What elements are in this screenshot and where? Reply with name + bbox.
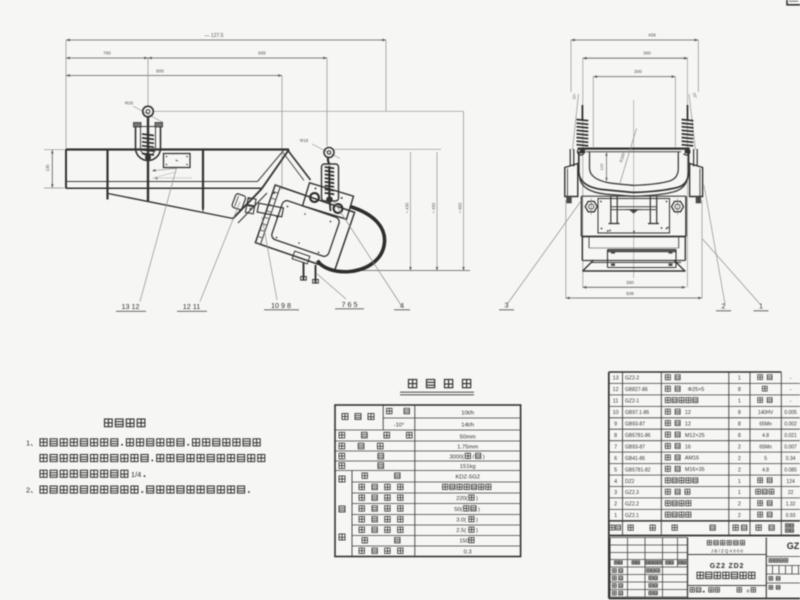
svg-text:120: 120 <box>599 163 604 170</box>
svg-text:0.34: 0.34 <box>786 456 796 462</box>
svg-text:760: 760 <box>103 51 111 56</box>
svg-text:458: 458 <box>648 33 656 38</box>
svg-text:124: 124 <box>786 479 795 485</box>
svg-text:GB93-87: GB93-87 <box>625 444 645 450</box>
svg-text:9: 9 <box>614 422 617 428</box>
svg-text:~ 430: ~ 430 <box>405 202 410 213</box>
svg-text:GB5781-82: GB5781-82 <box>625 467 651 473</box>
svg-text:1、: 1、 <box>26 439 38 448</box>
svg-text:140HV: 140HV <box>758 410 774 416</box>
svg-text:65Mn: 65Mn <box>759 422 772 428</box>
svg-text:10 9 8: 10 9 8 <box>271 301 291 310</box>
svg-text:14t/h: 14t/h <box>461 423 474 429</box>
svg-text:): ) <box>476 496 478 502</box>
svg-text:1: 1 <box>614 513 617 519</box>
svg-text:65Mn: 65Mn <box>759 444 772 450</box>
svg-text:0.93: 0.93 <box>786 513 796 519</box>
svg-text:Φ25×5: Φ25×5 <box>688 387 705 393</box>
svg-text:8: 8 <box>614 433 617 439</box>
svg-text:GZ: GZ <box>787 541 800 551</box>
svg-text:Φ26: Φ26 <box>125 101 134 106</box>
svg-text:4: 4 <box>614 479 617 485</box>
svg-text:4.8: 4.8 <box>762 433 769 439</box>
svg-text:508: 508 <box>626 291 634 296</box>
svg-text:8: 8 <box>738 410 741 416</box>
svg-text:7: 7 <box>614 444 617 450</box>
svg-text:M12×25: M12×25 <box>685 433 705 439</box>
svg-text:1.75mm: 1.75mm <box>457 445 478 451</box>
svg-text:2: 2 <box>738 444 741 450</box>
svg-text:1: 1 <box>738 479 741 485</box>
svg-text:3: 3 <box>505 301 509 310</box>
svg-text:GZ2.1: GZ2.1 <box>625 513 639 519</box>
svg-text:0.021: 0.021 <box>784 433 797 439</box>
svg-text:0.005: 0.005 <box>784 410 797 416</box>
svg-text:GB97.1-86: GB97.1-86 <box>625 410 649 416</box>
svg-text:J B / Z Q 4 0 0 0: J B / Z Q 4 0 0 0 <box>711 548 744 553</box>
svg-text:Φ18: Φ18 <box>300 138 309 143</box>
svg-text:GB93-87: GB93-87 <box>625 422 645 428</box>
svg-text:5: 5 <box>614 467 617 473</box>
svg-text:151kg: 151kg <box>460 464 476 470</box>
svg-text:11: 11 <box>613 399 619 405</box>
svg-text:0.085: 0.085 <box>784 467 797 473</box>
svg-text:— 127.5: — 127.5 <box>205 33 224 39</box>
svg-text:1: 1 <box>738 376 741 382</box>
svg-text:GZ2-2: GZ2-2 <box>625 376 639 382</box>
svg-text:13: 13 <box>613 376 619 382</box>
svg-text:KDZ-5G2: KDZ-5G2 <box>455 474 479 480</box>
svg-text:800: 800 <box>156 69 164 74</box>
svg-text:12: 12 <box>685 421 691 427</box>
svg-text:8: 8 <box>738 422 741 428</box>
svg-text:2.5(: 2.5( <box>456 528 466 534</box>
svg-text:5: 5 <box>764 456 767 462</box>
svg-text:220(: 220( <box>456 496 467 502</box>
svg-text:8: 8 <box>738 387 741 393</box>
svg-text:GZ2 ZD2: GZ2 ZD2 <box>710 563 744 570</box>
svg-text:4.8: 4.8 <box>762 467 769 473</box>
svg-text:3.0(: 3.0( <box>456 518 466 524</box>
svg-text:1: 1 <box>738 399 741 405</box>
svg-text:): ) <box>476 528 478 534</box>
svg-text:GB827-86: GB827-86 <box>625 387 648 393</box>
svg-text:130: 130 <box>45 164 50 172</box>
svg-text:360: 360 <box>643 51 651 56</box>
svg-text:GZ2.3: GZ2.3 <box>625 490 639 496</box>
svg-text:): ) <box>483 454 485 460</box>
svg-text:10t/h: 10t/h <box>461 411 474 417</box>
svg-text:0.3: 0.3 <box>464 550 472 556</box>
svg-text:0.002: 0.002 <box>784 422 797 428</box>
svg-text:13 12: 13 12 <box>122 302 140 311</box>
svg-text:665: 665 <box>258 51 266 56</box>
svg-text:~ 600: ~ 600 <box>458 202 463 213</box>
svg-text:-10°: -10° <box>394 423 405 429</box>
svg-text:16: 16 <box>685 444 691 450</box>
svg-text:): ) <box>476 518 478 524</box>
svg-text:6: 6 <box>614 456 617 462</box>
svg-text:DZ2: DZ2 <box>625 479 635 485</box>
svg-text:3000(: 3000( <box>450 454 465 460</box>
svg-text:1.32: 1.32 <box>786 502 796 508</box>
svg-text:8: 8 <box>738 433 741 439</box>
svg-text:GZ2.2: GZ2.2 <box>625 502 639 508</box>
svg-text:2: 2 <box>722 302 726 311</box>
svg-text:2: 2 <box>738 467 741 473</box>
svg-text:~ 450: ~ 450 <box>431 202 436 213</box>
svg-text:2: 2 <box>738 502 741 508</box>
svg-text:8: 8 <box>747 589 750 595</box>
svg-text:50mm: 50mm <box>460 435 476 441</box>
svg-text:): ) <box>478 507 480 513</box>
svg-text:300: 300 <box>634 69 642 74</box>
svg-text:2: 2 <box>738 513 741 519</box>
svg-text:AM16: AM16 <box>685 456 699 462</box>
svg-text:2: 2 <box>614 502 617 508</box>
svg-text:1: 1 <box>738 490 741 496</box>
svg-text:12 11: 12 11 <box>183 302 200 311</box>
svg-text:12: 12 <box>613 387 619 393</box>
svg-text:7 6 5: 7 6 5 <box>342 300 358 309</box>
svg-text:10: 10 <box>613 410 619 416</box>
svg-text:0.007: 0.007 <box>784 444 797 450</box>
svg-text:GB41-86: GB41-86 <box>625 456 645 462</box>
svg-text:50(: 50( <box>454 507 462 513</box>
svg-text:M16×35: M16×35 <box>685 467 705 473</box>
svg-text:150: 150 <box>459 539 469 545</box>
svg-text:380: 380 <box>626 280 634 285</box>
svg-text:GZ2-1: GZ2-1 <box>625 399 639 405</box>
svg-text:22: 22 <box>788 490 794 496</box>
svg-text:3: 3 <box>614 490 617 496</box>
svg-text:4: 4 <box>400 301 404 310</box>
svg-text:2: 2 <box>738 456 741 462</box>
svg-text:1/4: 1/4 <box>131 470 141 479</box>
svg-text:1: 1 <box>759 302 763 311</box>
svg-text:12: 12 <box>685 410 691 416</box>
svg-text:2、: 2、 <box>26 486 38 495</box>
svg-text:GB5781-86: GB5781-86 <box>625 433 651 439</box>
